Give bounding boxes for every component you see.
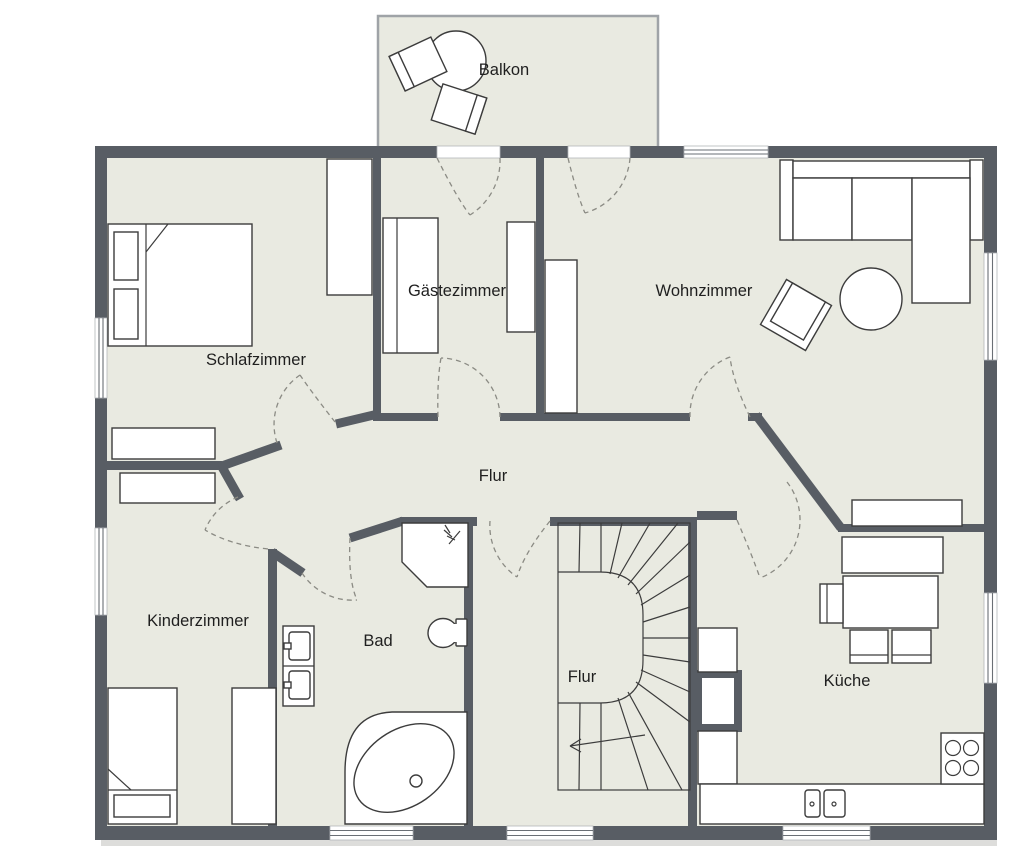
chimney-inner bbox=[702, 678, 734, 724]
floorplan-drawing: Balkon Schlafzimmer Gästezimmer Wohnzimm… bbox=[0, 0, 1024, 854]
tall-cabinet bbox=[698, 628, 737, 672]
label-kueche: Küche bbox=[824, 672, 871, 690]
tap bbox=[284, 643, 291, 649]
cabinet bbox=[545, 260, 577, 413]
wardrobe bbox=[327, 159, 372, 295]
tall-cabinet bbox=[698, 731, 737, 784]
wall-schlaf-gaeste bbox=[373, 158, 381, 417]
label-schlafzimmer: Schlafzimmer bbox=[206, 351, 306, 369]
washbasin bbox=[289, 632, 310, 660]
dresser bbox=[112, 428, 215, 459]
window-bottom-bad bbox=[330, 826, 413, 840]
sideboard bbox=[852, 500, 962, 526]
wall-gaeste-flur-left bbox=[373, 413, 438, 421]
tub-drain bbox=[410, 775, 422, 787]
window-top-wohnzimmer bbox=[684, 146, 768, 158]
label-flur-oben: Flur bbox=[479, 467, 508, 485]
window-bottom-kueche bbox=[783, 826, 870, 840]
window-left-schlafzimmer bbox=[95, 318, 107, 398]
wardrobe bbox=[507, 222, 535, 332]
balcony-door-opening-wohnzimmer bbox=[568, 146, 630, 158]
sofa-chaise bbox=[912, 178, 970, 303]
dining-chair bbox=[820, 584, 843, 623]
pillow bbox=[114, 232, 138, 280]
dresser bbox=[120, 473, 215, 503]
coffee-table bbox=[840, 268, 902, 330]
wall-flur-unten-top bbox=[550, 517, 697, 526]
wall-wohn-flur bbox=[500, 413, 690, 421]
sofa-armrest bbox=[970, 160, 983, 240]
sofa-seat bbox=[852, 178, 912, 240]
room-balkon bbox=[378, 16, 658, 148]
dining-chair bbox=[892, 630, 931, 663]
toilet bbox=[428, 619, 467, 648]
double-bed bbox=[108, 224, 252, 346]
tap bbox=[284, 682, 291, 688]
stove bbox=[941, 733, 984, 784]
balcony-door-opening-gaestezimmer bbox=[437, 146, 500, 158]
label-wohnzimmer: Wohnzimmer bbox=[656, 282, 753, 300]
washbasin bbox=[289, 671, 310, 699]
label-gaestezimmer: Gästezimmer bbox=[408, 282, 507, 300]
vanity-double-sink bbox=[283, 626, 314, 706]
label-kinderzimmer: Kinderzimmer bbox=[147, 612, 249, 630]
label-bad: Bad bbox=[363, 632, 392, 650]
sofa-seat bbox=[793, 178, 852, 240]
label-balkon: Balkon bbox=[479, 61, 529, 79]
window-bottom-flur bbox=[507, 826, 593, 840]
sofa-armrest bbox=[780, 160, 793, 240]
dining-table bbox=[843, 576, 938, 628]
wall-schlaf-bottom bbox=[107, 461, 222, 470]
single-bed bbox=[108, 688, 177, 824]
drop-shadow bbox=[101, 840, 997, 846]
kitchen-sink bbox=[805, 790, 845, 817]
label-flur-unten: Flur bbox=[568, 668, 597, 686]
dining-chair bbox=[850, 630, 888, 663]
window-right-wohnzimmer bbox=[984, 253, 997, 360]
wardrobe bbox=[232, 688, 276, 824]
pillow bbox=[114, 795, 170, 817]
window-left-kinderzimmer bbox=[95, 528, 107, 615]
wall-gaeste-wohn bbox=[536, 158, 544, 417]
kitchen-sideboard bbox=[842, 537, 943, 573]
sofa-back bbox=[793, 161, 970, 178]
pillow bbox=[114, 289, 138, 339]
floorplan-page: Balkon Schlafzimmer Gästezimmer Wohnzimm… bbox=[0, 0, 1024, 854]
window-right-kueche bbox=[984, 593, 997, 683]
wall-stub-kueche-door bbox=[697, 511, 737, 520]
